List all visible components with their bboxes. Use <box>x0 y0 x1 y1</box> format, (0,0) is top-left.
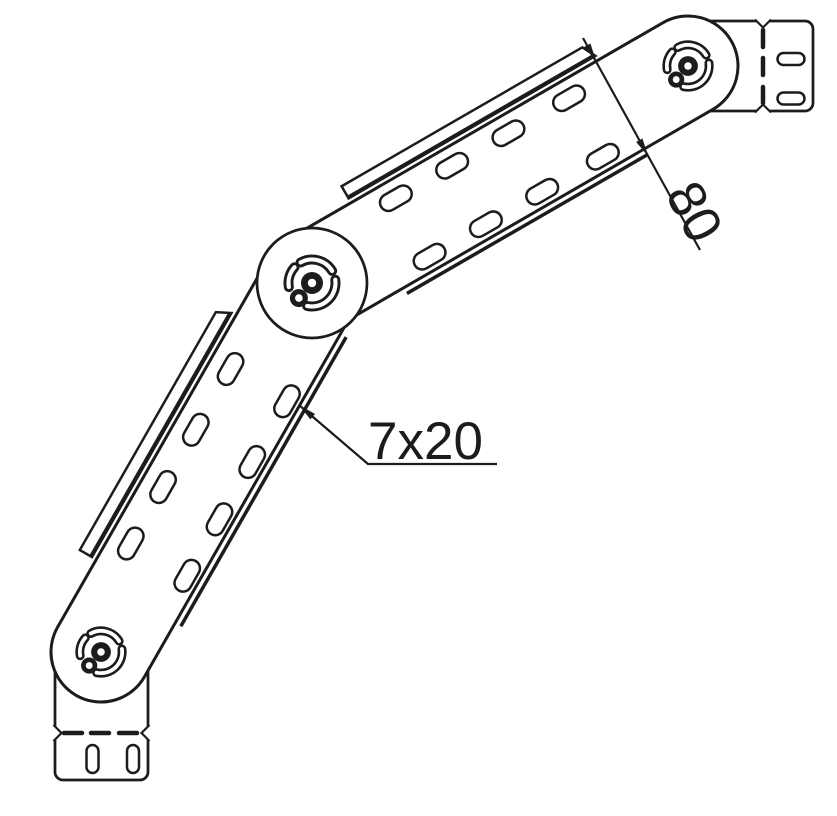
pivot-satellite-hole <box>86 662 93 669</box>
pivot-hub-hole <box>684 62 692 70</box>
pivot-satellite-hole <box>295 294 303 302</box>
fixing-slot <box>127 745 139 773</box>
drawing-page: 7x20 80 <box>0 0 837 816</box>
pivot-satellite-hole <box>673 76 680 83</box>
fixing-slot <box>87 745 99 773</box>
slot-size-label: 7x20 <box>368 412 483 471</box>
fixing-slot <box>778 93 805 105</box>
pivot-hub-hole <box>97 648 105 656</box>
width-dimension-label: 80 <box>654 172 734 252</box>
technical-drawing: 7x20 80 <box>0 0 837 816</box>
fixing-slot <box>778 53 805 65</box>
drawing-linework <box>16 0 813 780</box>
pivot-hub-hole <box>308 279 316 287</box>
